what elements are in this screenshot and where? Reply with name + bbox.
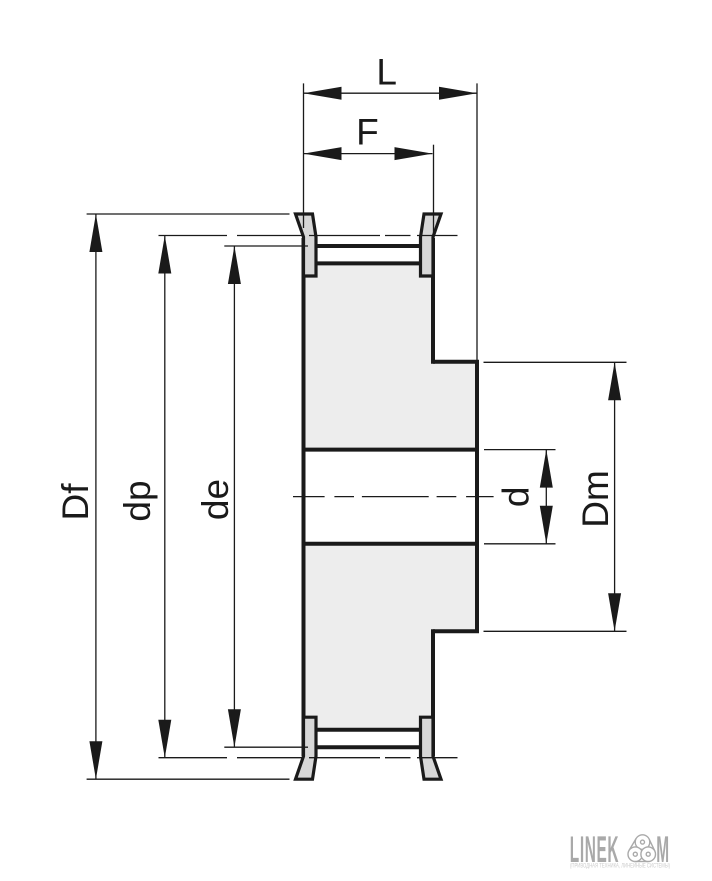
svg-text:de: de [195,479,236,520]
svg-text:F: F [356,112,379,153]
svg-text:d: d [496,487,537,508]
svg-text:Df: Df [55,483,96,521]
svg-text:dp: dp [117,480,158,521]
svg-text:(ПРИВОДНАЯ ТЕХНИКА, ЛИНЕЙНЫЕ С: (ПРИВОДНАЯ ТЕХНИКА, ЛИНЕЙНЫЕ СИСТЕМЫ) [570,862,670,870]
svg-text:Dm: Dm [575,470,616,528]
svg-text:L: L [376,52,397,93]
